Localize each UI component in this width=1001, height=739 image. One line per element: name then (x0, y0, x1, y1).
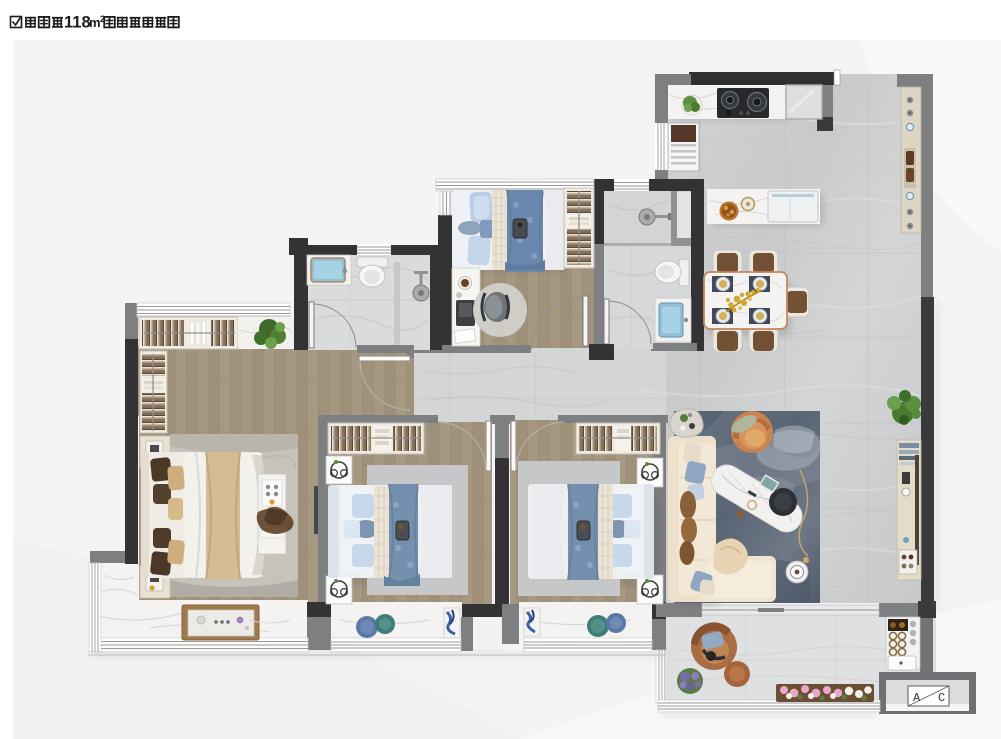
svg-text:C: C (938, 691, 945, 705)
svg-text:m: m (89, 15, 101, 30)
svg-text:118: 118 (64, 14, 91, 32)
svg-text:A: A (913, 691, 921, 705)
